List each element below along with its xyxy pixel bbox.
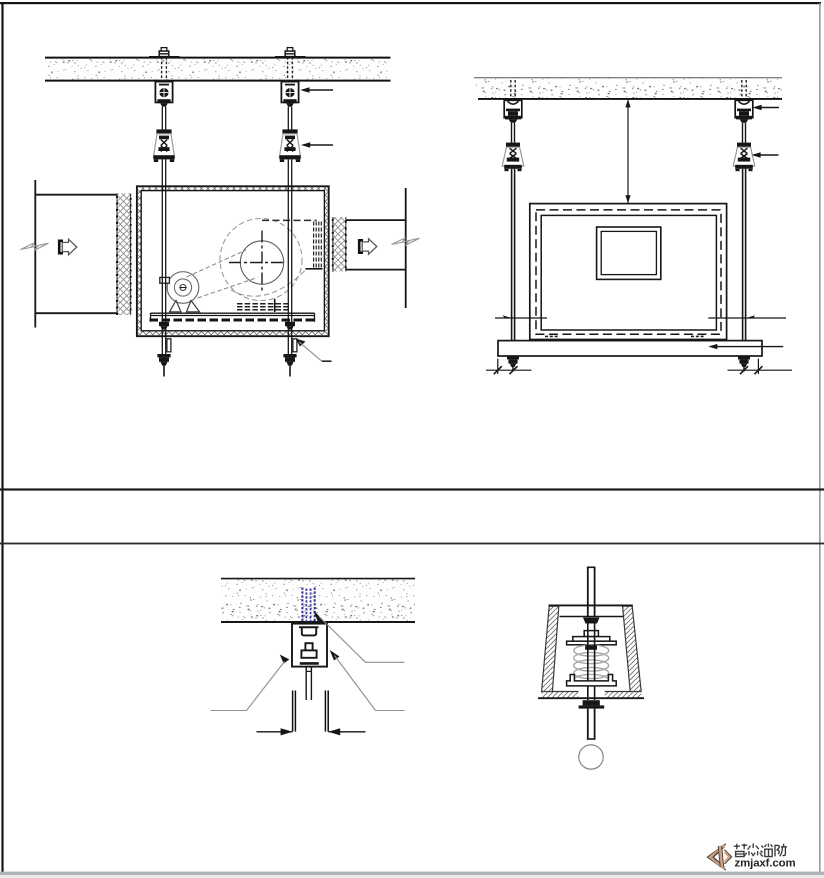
svg-text:zmjaxf.com: zmjaxf.com [735,858,796,870]
